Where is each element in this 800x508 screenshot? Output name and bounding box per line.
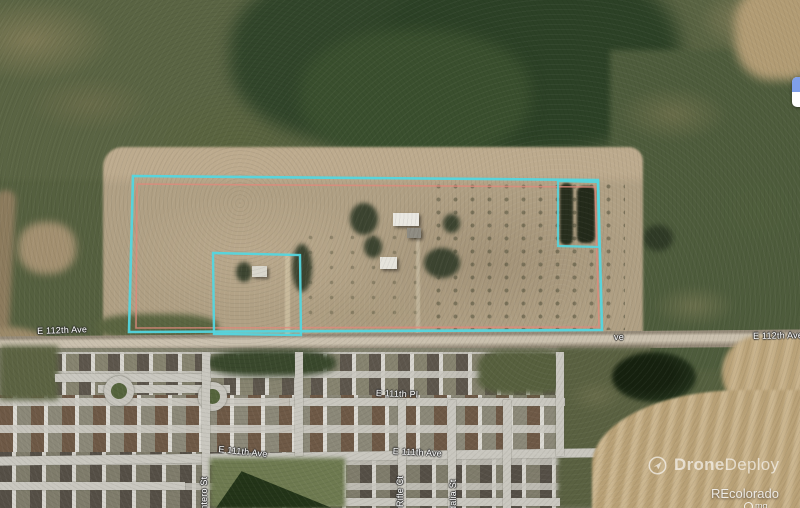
road-label-e112th-ave-left: E 112th Ave bbox=[37, 324, 87, 336]
street-sedalia-st bbox=[448, 400, 456, 508]
brand-light: Deploy bbox=[725, 455, 780, 474]
driveway bbox=[285, 253, 290, 337]
grass-patch bbox=[0, 346, 58, 400]
tree-cluster bbox=[364, 236, 382, 258]
pond bbox=[612, 352, 696, 402]
tree-cluster bbox=[643, 225, 673, 251]
map-control-partial-top bbox=[792, 77, 800, 92]
street bbox=[320, 498, 560, 506]
dronedeploy-logo-icon bbox=[648, 456, 667, 475]
windbreak-trees bbox=[577, 186, 595, 243]
farm-house bbox=[380, 257, 397, 269]
attribution-partial: mg bbox=[744, 501, 768, 508]
street-rifle-ct bbox=[398, 400, 406, 508]
tree-cluster bbox=[350, 203, 378, 235]
farm-building bbox=[393, 213, 419, 226]
street bbox=[295, 352, 303, 456]
attribution-text: mg bbox=[755, 501, 768, 508]
tree-cluster bbox=[443, 214, 460, 233]
farm-track bbox=[416, 232, 420, 334]
attribution-icon bbox=[744, 502, 753, 508]
street bbox=[0, 482, 185, 490]
homestead-house bbox=[252, 266, 267, 277]
aerial-map-canvas: E 112th AveveE 112th AveE 111th PlE 111t… bbox=[0, 0, 800, 508]
farm-building bbox=[407, 228, 421, 238]
brand-bold: Drone bbox=[674, 455, 725, 474]
street bbox=[556, 352, 564, 456]
street-e-111th-pl bbox=[290, 398, 565, 406]
recolorado-watermark: REcolorado bbox=[711, 486, 779, 501]
dronedeploy-watermark: DroneDeploy bbox=[648, 455, 779, 475]
forest-patch bbox=[300, 30, 530, 160]
map-control-partial[interactable] bbox=[792, 77, 800, 107]
cul-de-sac bbox=[104, 376, 134, 406]
street-quintero-st bbox=[202, 352, 210, 508]
tree-cluster bbox=[424, 248, 460, 278]
dronedeploy-wordmark: DroneDeploy bbox=[674, 455, 779, 475]
dirt-patch-topright bbox=[735, 0, 800, 80]
street bbox=[503, 400, 511, 508]
tree-row bbox=[208, 350, 336, 376]
windbreak-trees bbox=[560, 183, 573, 245]
dirt-patch-left bbox=[18, 222, 76, 274]
shrub-texture bbox=[430, 180, 625, 330]
tree-cluster bbox=[236, 262, 252, 282]
grass-patch bbox=[478, 350, 568, 394]
tree-row bbox=[292, 244, 312, 292]
